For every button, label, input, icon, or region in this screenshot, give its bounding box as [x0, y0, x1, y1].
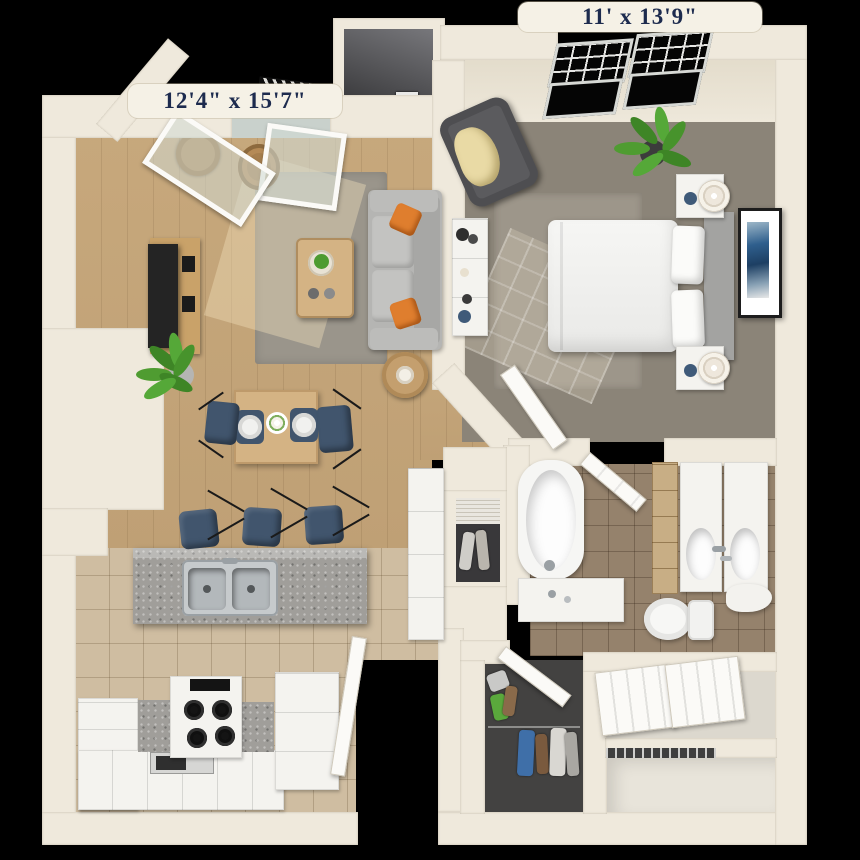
hanging-clothes-brown — [535, 734, 549, 775]
living-room-dimensions-text: 12'4" x 15'7" — [163, 88, 306, 114]
bedroom-window — [541, 33, 716, 118]
closet-shelf-rod — [606, 748, 716, 758]
sink-bowl — [730, 528, 760, 580]
closet-rod — [488, 726, 580, 728]
wall — [42, 328, 164, 510]
dresser-candle — [460, 268, 469, 277]
table-lamp — [698, 180, 730, 212]
counter-granite — [240, 702, 274, 752]
bar-stool — [304, 505, 345, 546]
wall — [42, 812, 358, 845]
window-lower-sash — [622, 69, 703, 110]
wall — [775, 25, 807, 845]
bed-mattress — [548, 220, 678, 352]
dresser-vase — [468, 234, 478, 244]
coffee-table-bowl — [308, 288, 319, 299]
appliance-window — [156, 756, 186, 770]
duvet-fold — [560, 222, 563, 350]
stove-burner — [187, 728, 207, 748]
bedroom-dimensions-text: 11' x 13'9" — [582, 4, 698, 30]
bathroom-tall-cabinet — [652, 462, 678, 594]
lamp-base-blue — [684, 192, 697, 205]
flower-centerpiece — [266, 412, 288, 434]
island-counter-edge — [133, 548, 367, 558]
entry-vestibule — [356, 660, 440, 814]
bed-headboard — [704, 212, 734, 360]
plant-leaf — [614, 142, 650, 155]
range-cooktop — [190, 679, 230, 691]
french-door-right — [257, 123, 347, 211]
wall-art-print — [747, 222, 769, 298]
wall — [438, 812, 807, 845]
sink-bowl — [686, 528, 716, 580]
counter-granite — [138, 700, 172, 752]
dining-chair — [204, 400, 240, 445]
dinner-plate — [238, 415, 262, 439]
tub-faucet — [544, 560, 555, 571]
stove-burner — [184, 700, 204, 720]
dresser-decor — [462, 294, 472, 304]
bath-counter — [518, 578, 624, 622]
wall — [460, 660, 485, 814]
coffee-table-plant — [314, 254, 329, 269]
sink-faucet — [222, 558, 238, 564]
wall — [42, 508, 108, 556]
tv-component — [182, 256, 195, 272]
sink-drain — [247, 585, 255, 593]
linen-closet-shelf — [456, 498, 500, 524]
bar-stool — [178, 508, 220, 550]
toilet-bowl — [644, 598, 692, 640]
stove-burner — [215, 726, 235, 746]
sink-drain — [203, 585, 211, 593]
hanging-clothes-blue — [517, 730, 535, 777]
wall — [330, 95, 444, 138]
table-lamp — [698, 352, 730, 384]
dining-chair — [316, 405, 354, 454]
bed-pillow — [671, 289, 705, 348]
vanity-faucet — [712, 546, 726, 552]
dresser-decor-blue — [458, 310, 471, 323]
bed-pillow — [671, 225, 705, 284]
stove-burner — [212, 700, 232, 720]
sofa-armrest — [370, 328, 438, 350]
tv-component — [182, 296, 195, 312]
closet-panel-door — [594, 664, 675, 737]
coffee-table-bowl — [324, 288, 335, 299]
lamp-base-blue — [684, 364, 697, 377]
bar-stool — [242, 507, 283, 548]
side-table-lamp — [396, 366, 414, 384]
wall — [443, 447, 507, 495]
vanity-faucet — [720, 556, 732, 561]
dinner-plate — [292, 413, 316, 437]
toilet-tank — [688, 600, 714, 640]
kitchen-tall-cabinet — [408, 468, 444, 640]
floor-plan: 11' x 13'9" 12'4" x 15'7" — [0, 0, 860, 860]
bathtub-basin — [526, 470, 576, 570]
dimension-label-living-room: 12'4" x 15'7" — [128, 84, 342, 118]
counter-item — [548, 590, 556, 598]
dimension-label-bedroom: 11' x 13'9" — [518, 2, 762, 32]
closet-panel-door — [664, 656, 745, 729]
closet-lower-floor — [605, 756, 777, 814]
window-lower-sash — [542, 78, 623, 119]
counter-item — [564, 596, 571, 603]
